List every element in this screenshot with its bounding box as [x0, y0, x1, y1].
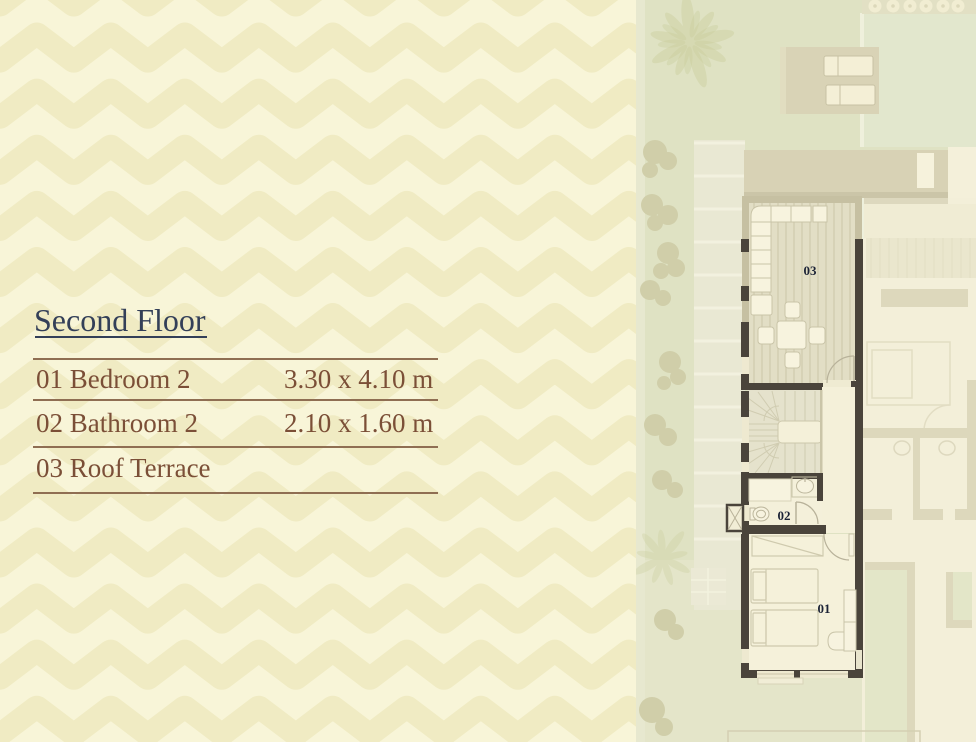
svg-text:01: 01 — [818, 601, 831, 616]
svg-text:02: 02 — [778, 508, 791, 523]
svg-text:03: 03 — [804, 263, 818, 278]
